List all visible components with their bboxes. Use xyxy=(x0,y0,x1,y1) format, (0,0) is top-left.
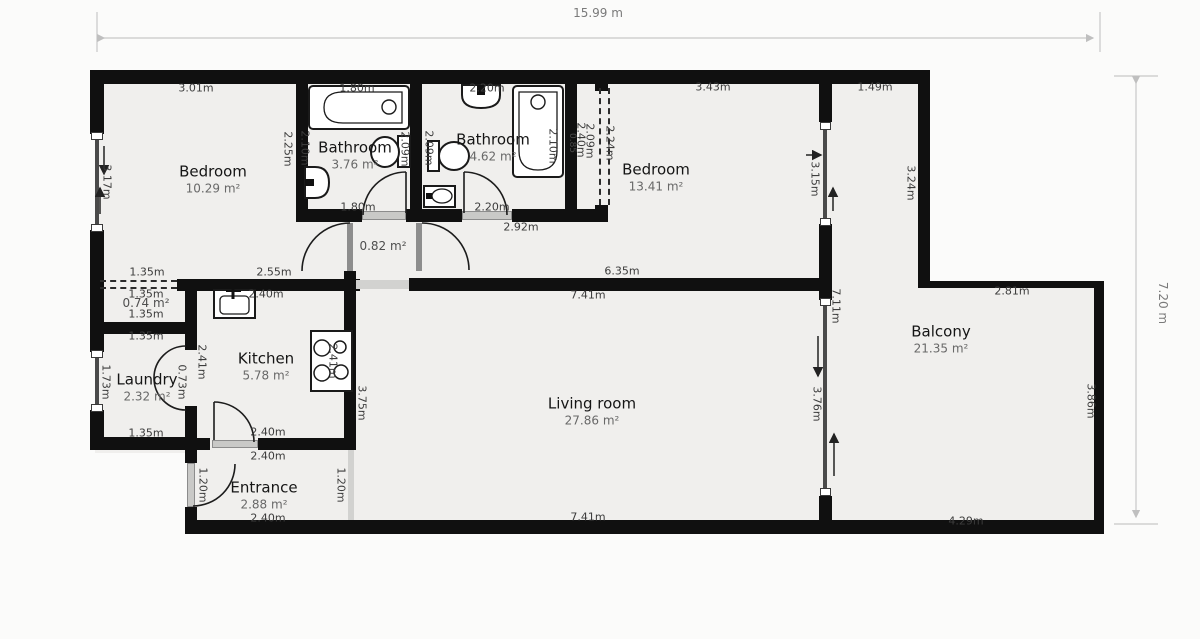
room-label-bedroom-1: Bedroom 10.29 m² xyxy=(179,163,247,196)
room-name: Bedroom xyxy=(179,163,247,180)
dim-label: 2.40m xyxy=(250,426,285,439)
dim-label: 1.80m xyxy=(340,201,375,214)
room-area: 10.29 m² xyxy=(179,183,247,197)
room-label-bathroom-2: Bathroom 4.62 m² xyxy=(456,131,530,164)
dim-label: 1.80m xyxy=(339,82,374,95)
overall-width-label: 15.99 m xyxy=(573,6,623,20)
dim-label: 3.17m xyxy=(101,164,114,199)
dim-label: 1.20m xyxy=(197,467,210,502)
dim-label: 7.41m xyxy=(570,511,605,524)
dim-label: 2.92m xyxy=(503,221,538,234)
room-area: 3.76 m² xyxy=(318,159,392,173)
overall-height-label: 7.20 m xyxy=(1156,282,1170,324)
dim-label: 2.09m xyxy=(423,130,436,165)
plan-graphics xyxy=(0,0,1200,639)
room-label-entrance: Entrance 2.88 m² xyxy=(230,479,297,512)
dim-label: 3.15m xyxy=(809,161,822,196)
room-area: 21.35 m² xyxy=(911,343,970,357)
room-name: Living room xyxy=(548,395,636,412)
room-area: 27.86 m² xyxy=(548,415,636,429)
room-name: Kitchen xyxy=(238,350,294,367)
dim-label: 2.09m xyxy=(584,123,597,158)
room-label-living-room: Living room 27.86 m² xyxy=(548,395,636,428)
dim-label: 3.76m xyxy=(811,386,824,421)
dim-label: 1.35m xyxy=(129,266,164,279)
dim-label: 3.86m xyxy=(1085,383,1098,418)
dim-label: 2.81m xyxy=(994,285,1029,298)
dim-label: 1.20m xyxy=(335,467,348,502)
dim-label: 3.43m xyxy=(695,81,730,94)
room-label-closet: 0.74 m² xyxy=(122,296,169,310)
room-name: Bathroom xyxy=(456,131,530,148)
dim-label: 2.10m xyxy=(299,130,312,165)
dim-label: 3.24m xyxy=(905,165,918,200)
dim-label: 2.09m xyxy=(399,131,412,166)
dim-label: 7.41m xyxy=(570,289,605,302)
room-area: 13.41 m² xyxy=(622,181,690,195)
dim-label: 6.35m xyxy=(604,265,639,278)
dim-label: 2.40m xyxy=(248,288,283,301)
dim-label: 2.10m xyxy=(547,128,560,163)
dim-label: 1.35m xyxy=(128,330,163,343)
dim-label: 2.40m xyxy=(250,512,285,525)
dim-label: 3.75m xyxy=(356,385,369,420)
room-area: 2.32 m² xyxy=(116,391,177,405)
floor-plan: 15.99 m 7.20 m 3.01m 1.80m 2.20m 3.43m 1… xyxy=(0,0,1200,639)
room-name: Entrance xyxy=(230,479,297,496)
dim-label: 3.01m xyxy=(178,82,213,95)
room-label-bathroom-1: Bathroom 3.76 m² xyxy=(318,139,392,172)
dim-label: 1.35m xyxy=(128,427,163,440)
room-label-kitchen: Kitchen 5.78 m² xyxy=(238,350,294,383)
room-label-laundry: Laundry 2.32 m² xyxy=(116,371,177,404)
dim-label: 2.20m xyxy=(469,82,504,95)
room-area: 4.62 m² xyxy=(456,151,530,165)
dim-label: 1.73m xyxy=(100,364,113,399)
overall-height-dimension-line xyxy=(1114,76,1158,524)
dim-label: 2.41m xyxy=(196,344,209,379)
room-name: Bedroom xyxy=(622,161,690,178)
dim-label: 2.41m xyxy=(327,343,340,378)
dim-label: 2.20m xyxy=(474,201,509,214)
dim-label: 7.11m xyxy=(830,288,843,323)
room-label-bedroom-2: Bedroom 13.41 m² xyxy=(622,161,690,194)
dim-label: 2.25m xyxy=(282,131,295,166)
sink-icon xyxy=(424,186,455,207)
room-area: 5.78 m² xyxy=(238,370,294,384)
room-label-balcony: Balcony 21.35 m² xyxy=(911,323,970,356)
dim-label: 2.55m xyxy=(256,266,291,279)
dim-label: 1.49m xyxy=(857,81,892,94)
dim-label: 4.29m xyxy=(948,515,983,528)
room-label-hallway: 0.82 m² xyxy=(359,239,406,253)
dim-label: 2.24m xyxy=(604,125,617,160)
room-name: Laundry xyxy=(116,371,177,388)
room-name: Bathroom xyxy=(318,139,392,156)
dim-label: 2.40m xyxy=(250,450,285,463)
room-area: 2.88 m² xyxy=(230,499,297,513)
room-name: Balcony xyxy=(911,323,970,340)
